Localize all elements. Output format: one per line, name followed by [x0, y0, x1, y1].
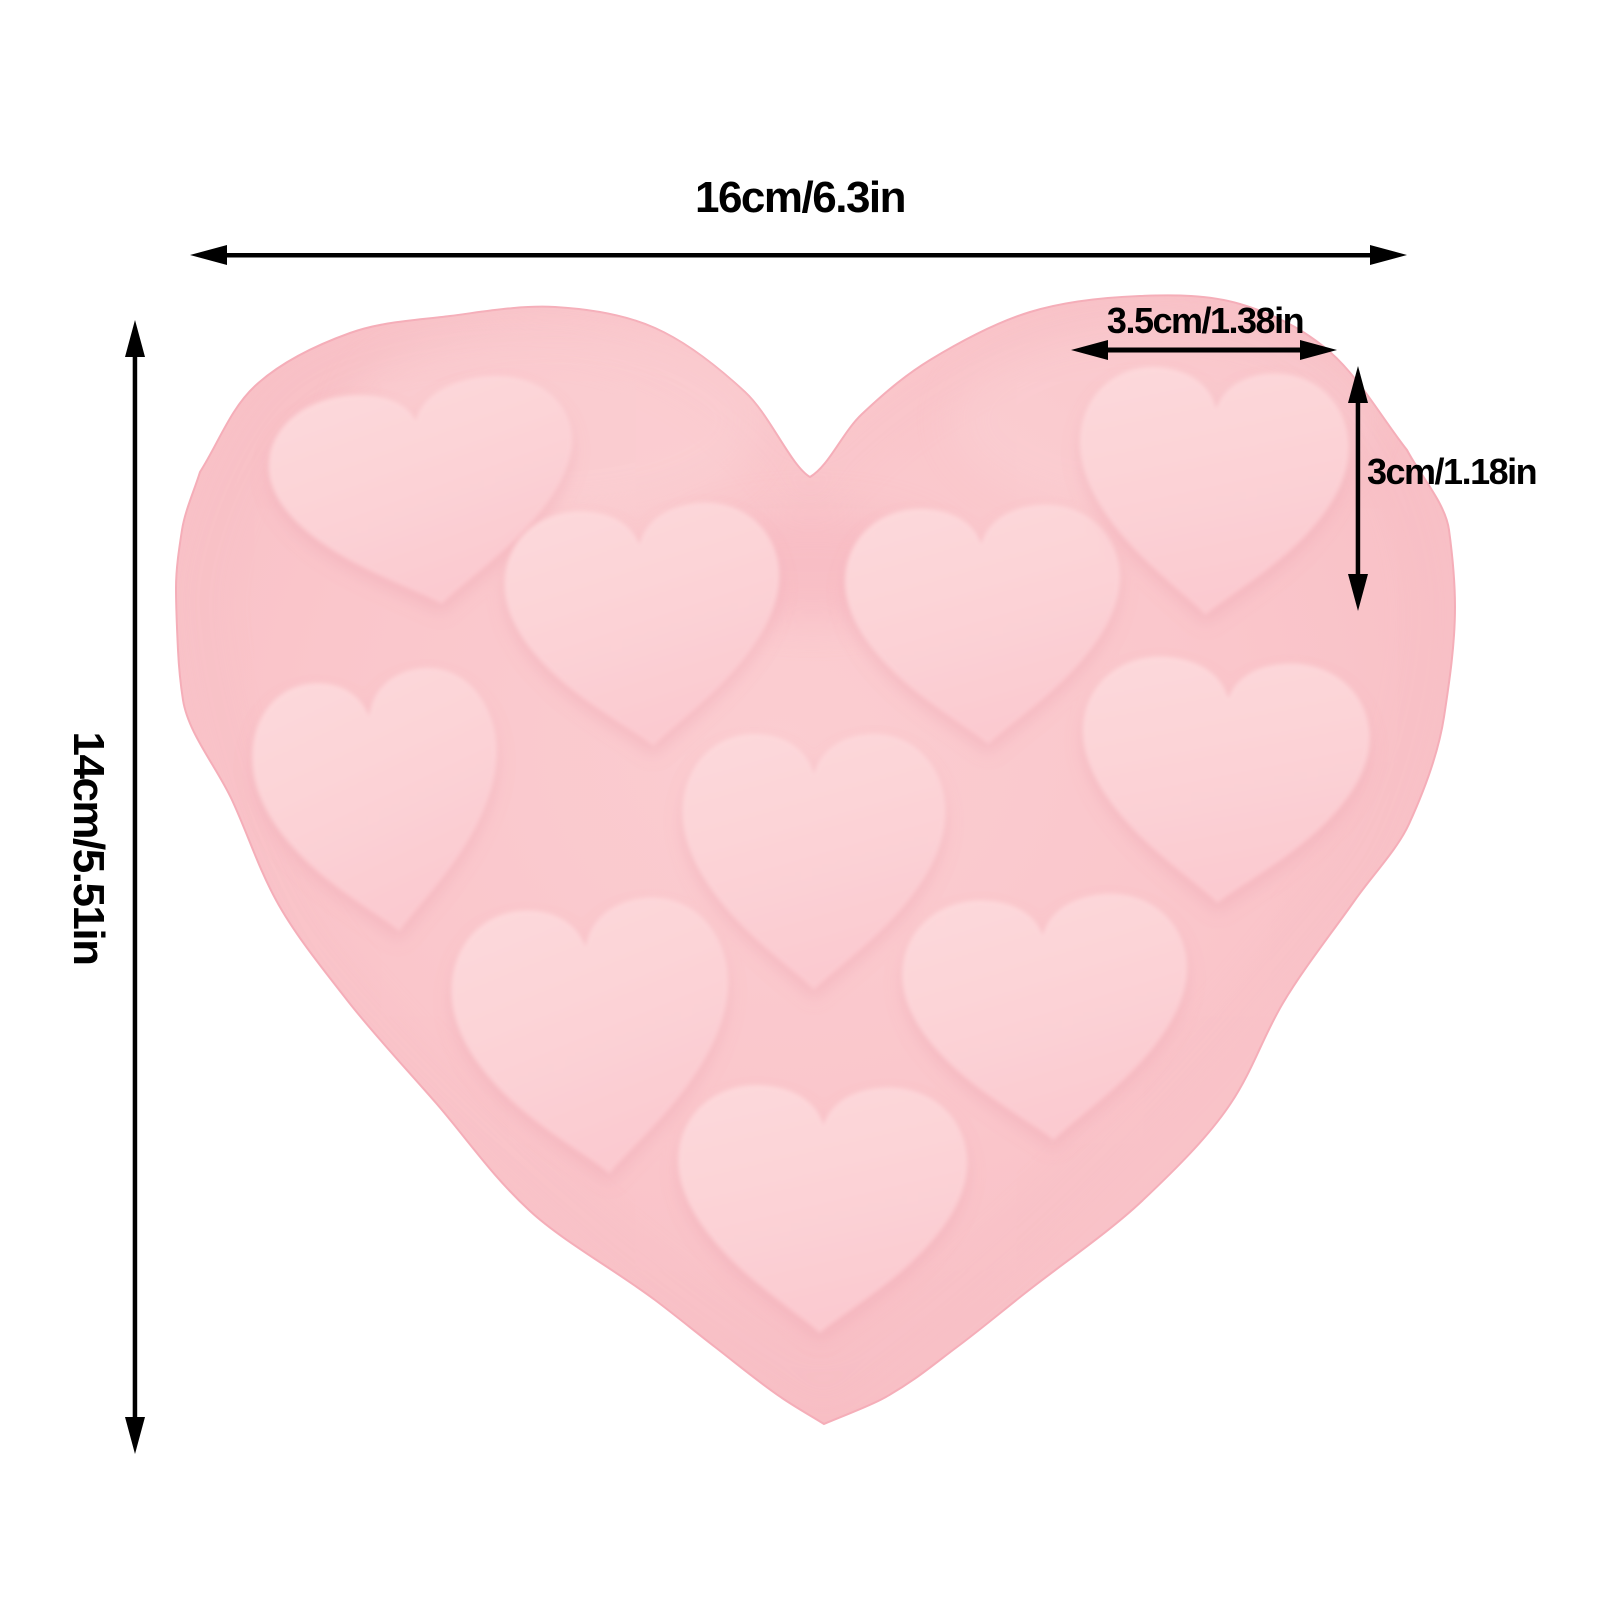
svg-text:16cm/6.3in: 16cm/6.3in — [695, 173, 905, 222]
svg-text:3.5cm/1.38in: 3.5cm/1.38in — [1107, 300, 1303, 341]
svg-text:3cm/1.18in: 3cm/1.18in — [1367, 451, 1536, 492]
svg-text:14cm/5.51in: 14cm/5.51in — [64, 732, 113, 965]
